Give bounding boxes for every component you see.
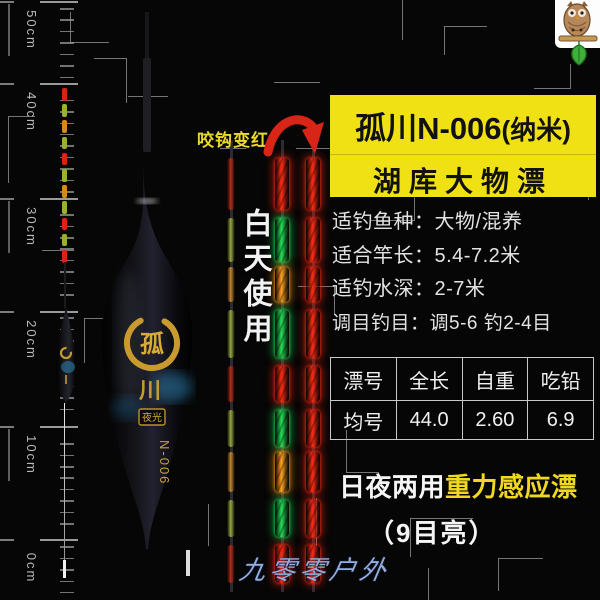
led-segment-green	[275, 500, 289, 537]
led-segment-green	[275, 410, 289, 447]
product-subtitle: 湖库大物漂	[330, 154, 596, 200]
ruler-tick-minor	[60, 512, 74, 514]
spec-list: 适钓鱼种：大物/混养适合竿长：5.4-7.2米适钓水深：2-7米调目钓目：调5-…	[332, 206, 596, 340]
ruler-label: 50cm	[24, 10, 39, 50]
mini-segment-red	[62, 88, 67, 101]
spec-line: 适钓鱼种：大物/混养	[332, 206, 596, 240]
grid-mark	[274, 50, 320, 83]
table-cell: 6.9	[528, 401, 594, 440]
led-segment-red	[227, 366, 235, 402]
big-float: 孤 川 夜光 N-006	[86, 0, 208, 560]
model-code: N-006	[157, 440, 172, 485]
bite-alert-arrow	[262, 96, 332, 166]
ruler-edge-dash	[0, 426, 14, 428]
info-panel: 孤川N-006(纳米) 湖库大物漂 适钓鱼种：大物/混养适合竿长：5.4-7.2…	[328, 0, 596, 600]
led-segment-red	[306, 310, 320, 358]
led-segment-red	[306, 410, 320, 447]
feature-white: 日夜两用	[339, 472, 445, 502]
small-float-stem-tip	[63, 560, 66, 578]
ruler-tick-minor	[60, 466, 74, 468]
title-paren: (纳米)	[502, 115, 571, 145]
mini-segment-orange	[62, 185, 67, 198]
table-cell: 44.0	[396, 401, 462, 440]
led-segment-red	[227, 158, 235, 210]
ruler-tick-minor	[60, 271, 74, 273]
led-segment-red	[306, 366, 320, 402]
mini-segment-yellowgreen	[62, 169, 67, 182]
title-box: 孤川N-006(纳米) 湖库大物漂	[330, 95, 596, 197]
led-segment-red	[227, 545, 235, 583]
led-segment-red	[306, 218, 320, 262]
table-cell: 2.60	[462, 401, 528, 440]
ruler-tick-minor	[60, 558, 74, 560]
mini-antenna-line	[64, 262, 66, 308]
ruler-tick-minor	[60, 489, 74, 491]
ruler-edge-line	[8, 4, 10, 56]
grid-mark	[42, 250, 74, 253]
ruler-tick-minor	[60, 500, 74, 502]
title-main: 孤川N-006	[355, 111, 501, 146]
ruler-edge-line	[8, 429, 10, 481]
ruler-tick-minor	[60, 443, 74, 445]
ruler-label: 10cm	[24, 435, 39, 475]
ruler-tick-major	[40, 83, 78, 85]
ruler-label: 30cm	[24, 207, 39, 247]
feature-yellow: 重力感应漂	[445, 472, 578, 502]
led-segment-yellowgreen	[227, 410, 235, 447]
small-float-body	[50, 305, 82, 405]
led-segment-orange	[227, 452, 235, 492]
led-segment-yellowgreen	[227, 500, 235, 537]
ruler-tick-minor	[60, 214, 74, 216]
table-row: 均号44.02.606.9	[331, 401, 594, 440]
spec-table: 漂号全长自重吃铅均号44.02.606.9	[330, 357, 594, 440]
ruler-edge-line	[8, 201, 10, 253]
watermark: 九零零户外	[237, 550, 394, 587]
table-cell: 均号	[331, 401, 397, 440]
mini-segment-yellowgreen	[62, 104, 67, 117]
ruler-tick-minor	[60, 477, 74, 479]
mini-segment-yellowgreen	[62, 234, 67, 247]
grid-mark	[208, 504, 211, 546]
table-header: 全长	[396, 358, 462, 401]
ruler-tick-minor	[60, 42, 74, 44]
small-float-stem	[64, 403, 66, 577]
led-segment-orange	[275, 452, 289, 492]
table-header: 漂号	[331, 358, 397, 401]
ruler-edge-dash	[0, 198, 14, 200]
spec-line: 适合竿长：5.4-7.2米	[332, 240, 596, 274]
day-use-label: 白天使用	[234, 208, 276, 348]
led-segment-red	[306, 267, 320, 302]
ruler-tick-minor	[60, 8, 74, 10]
brand-character-top: 孤	[140, 330, 164, 358]
ruler-tick-minor	[60, 409, 74, 411]
ruler-tick-minor	[60, 581, 74, 583]
ruler-tick-minor	[60, 134, 74, 136]
led-segment-red	[306, 500, 320, 537]
mini-segment-yellowgreen	[62, 137, 67, 150]
mini-segment-orange	[62, 120, 67, 133]
ruler-label: 40cm	[24, 92, 39, 132]
ruler-tick-minor	[60, 523, 74, 525]
ruler-tick-major	[40, 198, 78, 200]
float-antenna	[143, 58, 151, 152]
ruler-tick-major	[40, 1, 78, 3]
table-header: 吃铅	[528, 358, 594, 401]
mini-segment-yellowgreen	[62, 201, 67, 214]
ruler-tick-minor	[60, 592, 74, 594]
ruler-tick-minor	[60, 54, 74, 56]
ruler-tick-minor	[60, 31, 74, 33]
led-segment-orange	[275, 267, 289, 302]
led-segment-green	[275, 218, 289, 262]
bite-alert-label: 咬钩变红	[197, 126, 269, 151]
ruler-edge-dash	[0, 539, 14, 541]
spec-line: 适钓水深：2-7米	[332, 273, 596, 307]
ruler-tick-minor	[60, 294, 74, 296]
spec-line: 调目钓目：调5-6 钓2-4目	[332, 307, 596, 341]
ruler-tick-minor	[60, 77, 74, 79]
led-segment-red	[275, 366, 289, 402]
ruler-tick-minor	[60, 283, 74, 285]
ruler-tick-minor	[60, 455, 74, 457]
mini-segment-red	[62, 250, 67, 263]
ruler-label: 20cm	[24, 320, 39, 360]
ruler-tick-major	[40, 539, 78, 541]
ruler-label: 0cm	[24, 553, 39, 584]
product-poster: 50cm40cm30cm20cm10cm0cm	[0, 0, 600, 600]
leaf-icon	[566, 40, 592, 66]
feature-line: 日夜两用重力感应漂	[339, 467, 578, 504]
ruler-tick-minor	[60, 65, 74, 67]
ruler-tick-minor	[60, 19, 74, 21]
product-title: 孤川N-006(纳米)	[330, 103, 596, 148]
ruler-edge-dash	[0, 1, 14, 3]
ruler-tick-minor	[60, 546, 74, 548]
table-header: 自重	[462, 358, 528, 401]
ruler-edge-dash	[0, 83, 14, 85]
seal-label: 夜光	[142, 411, 162, 424]
mini-segment-red	[62, 218, 67, 231]
led-segment-green	[275, 310, 289, 358]
float-antenna-tip	[145, 12, 149, 60]
bright-note: （9目亮）	[368, 513, 496, 550]
brand-character-bottom: 川	[138, 378, 161, 403]
ruler-tick-major	[40, 426, 78, 428]
mini-segment-red	[62, 153, 67, 166]
led-segment-red	[306, 452, 320, 492]
ruler-edge-dash	[0, 311, 14, 313]
